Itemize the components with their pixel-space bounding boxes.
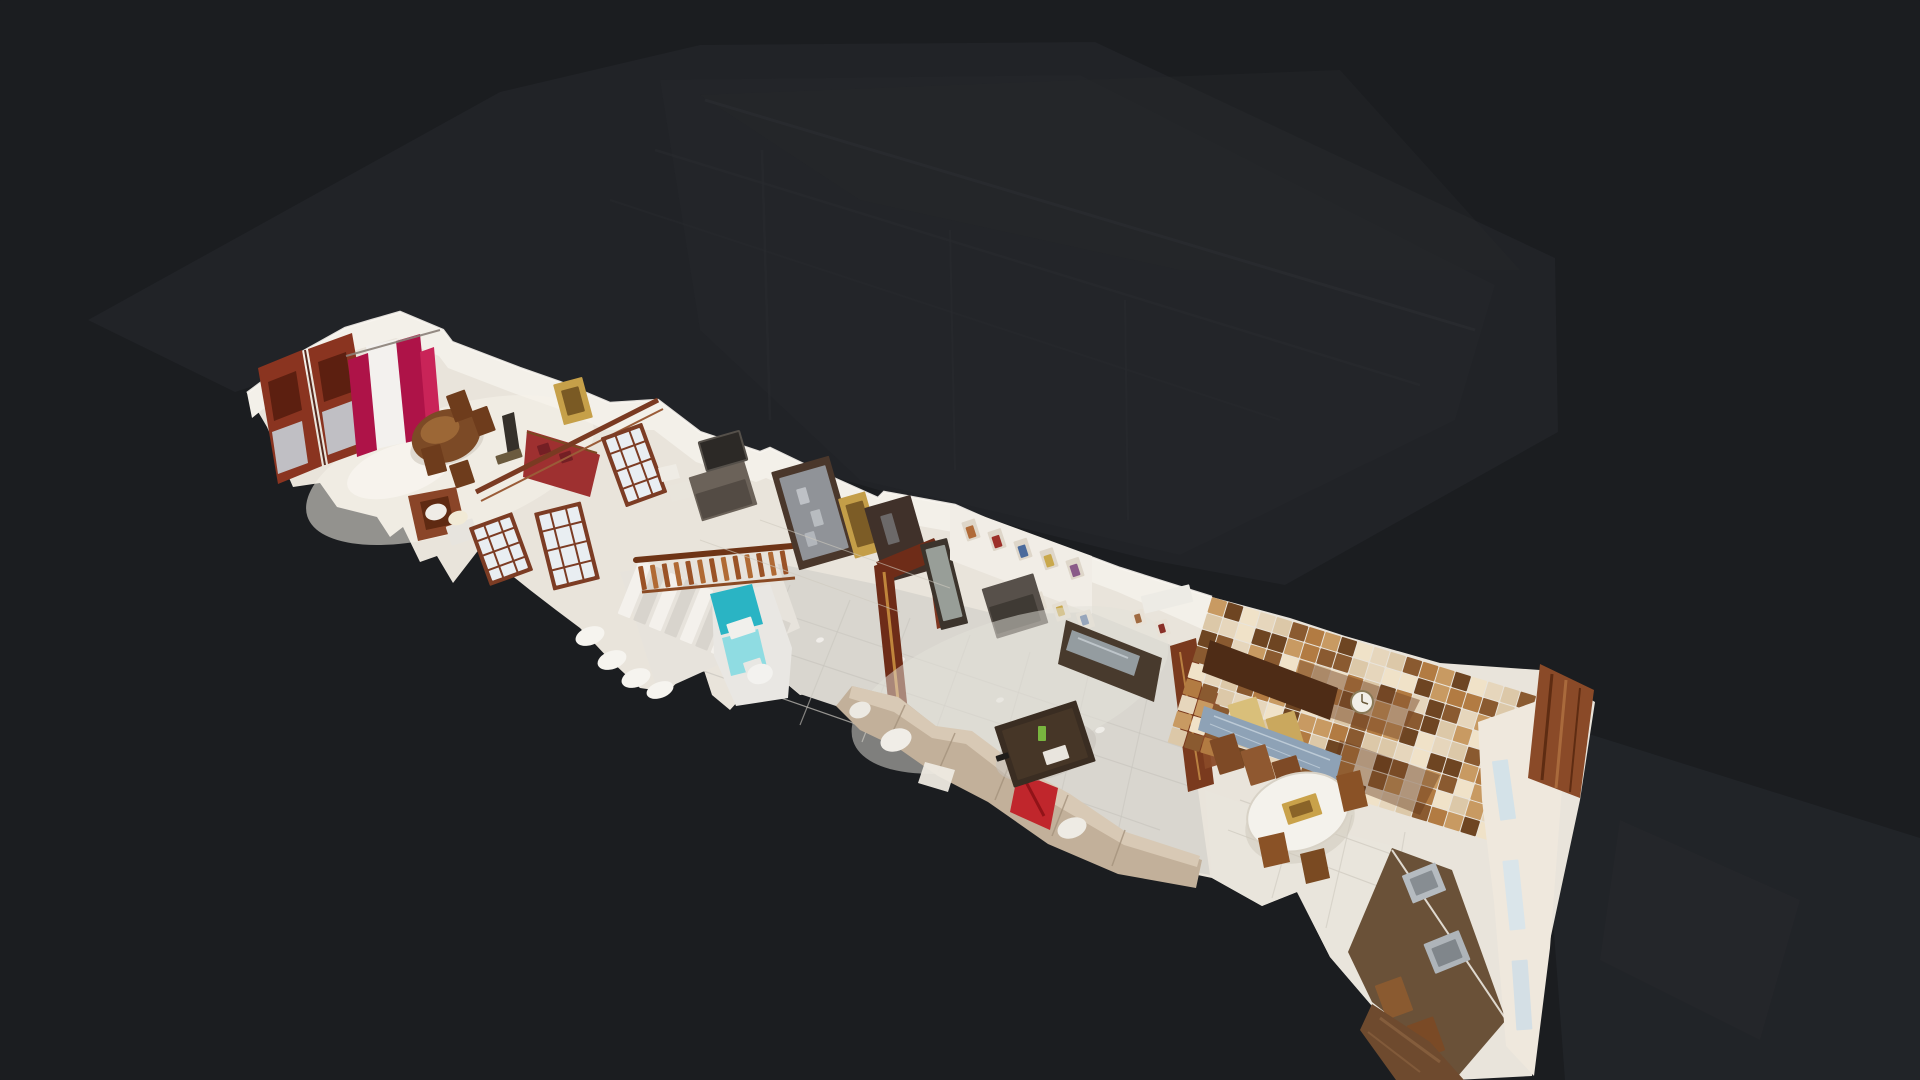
dollhouse-scene[interactable]: [0, 0, 1920, 1080]
green-bottle: [1038, 726, 1046, 741]
dollhouse-3d-viewport[interactable]: [0, 0, 1920, 1080]
